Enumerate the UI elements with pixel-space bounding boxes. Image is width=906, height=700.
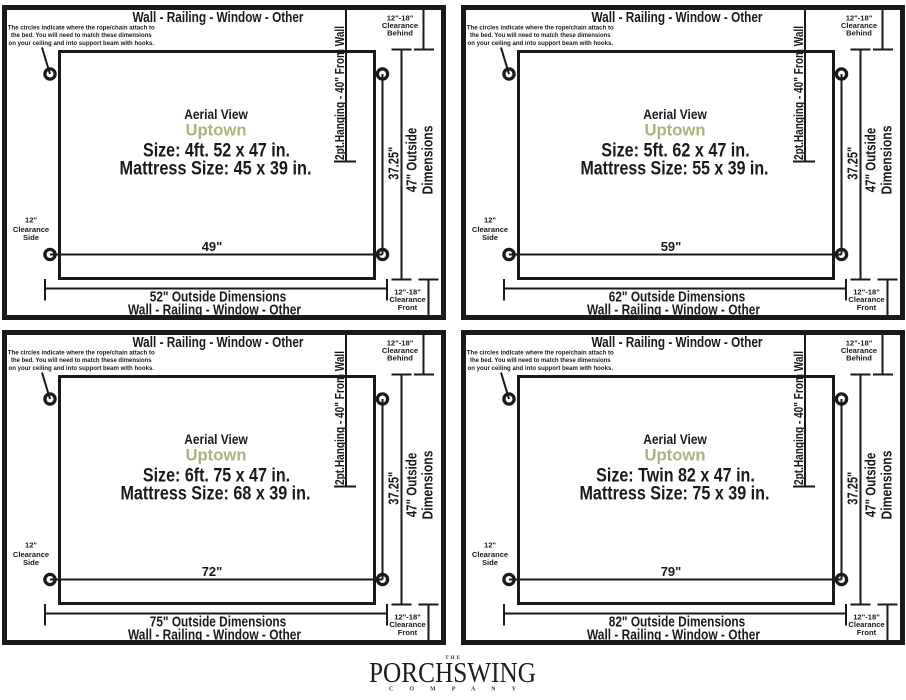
svg-text:on your ceiling and into suppo: on your ceiling and into support beam wi… — [9, 365, 155, 372]
svg-text:Dimensions: Dimensions — [880, 451, 896, 520]
svg-text:37.25": 37.25" — [845, 472, 862, 505]
svg-text:2pt.Hanging - 40" From Wall: 2pt.Hanging - 40" From Wall — [332, 351, 347, 485]
svg-text:Front: Front — [857, 303, 877, 312]
svg-text:The circles indicate where the: The circles indicate where the rope/chai… — [467, 24, 614, 31]
svg-text:Behind: Behind — [387, 29, 413, 38]
svg-text:72": 72" — [202, 564, 223, 579]
svg-text:Front: Front — [857, 628, 877, 637]
svg-text:on your ceiling and into suppo: on your ceiling and into support beam wi… — [9, 40, 155, 47]
svg-text:The circles indicate where the: The circles indicate where the rope/chai… — [8, 349, 155, 356]
svg-text:Uptown: Uptown — [186, 447, 247, 465]
svg-text:Mattress Size: 75 x 39 in.: Mattress Size: 75 x 39 in. — [580, 484, 770, 505]
svg-text:Behind: Behind — [846, 354, 872, 363]
svg-text:37.25": 37.25" — [845, 147, 862, 180]
svg-text:the bed. You will need to matc: the bed. You will need to match these di… — [470, 357, 611, 364]
svg-text:Behind: Behind — [387, 354, 413, 363]
svg-text:Behind: Behind — [846, 29, 872, 38]
svg-text:47" Outside: 47" Outside — [864, 453, 880, 518]
svg-text:Dimensions: Dimensions — [880, 126, 896, 195]
svg-text:Wall - Railing - Window - Othe: Wall - Railing - Window - Other — [587, 303, 760, 319]
svg-text:47" Outside: 47" Outside — [864, 128, 880, 193]
svg-text:Uptown: Uptown — [645, 447, 706, 465]
svg-text:2pt.Hanging - 40" From Wall: 2pt.Hanging - 40" From Wall — [791, 351, 806, 485]
svg-text:Front: Front — [398, 628, 418, 637]
svg-text:49": 49" — [202, 239, 223, 254]
svg-text:Mattress Size: 55 x 39 in.: Mattress Size: 55 x 39 in. — [581, 159, 769, 180]
svg-text:47" Outside: 47" Outside — [405, 128, 421, 193]
svg-text:12": 12" — [484, 540, 496, 549]
svg-text:2pt.Hanging - 40" From Wall: 2pt.Hanging - 40" From Wall — [332, 26, 347, 160]
svg-text:Side: Side — [23, 233, 39, 242]
svg-text:12": 12" — [484, 215, 496, 224]
svg-text:37.25": 37.25" — [386, 472, 403, 505]
svg-text:Wall - Railing - Window - Othe: Wall - Railing - Window - Other — [587, 628, 760, 644]
svg-text:59": 59" — [661, 239, 682, 254]
svg-text:the bed. You will need to matc: the bed. You will need to match these di… — [11, 32, 152, 39]
svg-text:12": 12" — [25, 540, 37, 549]
svg-text:47" Outside: 47" Outside — [405, 453, 421, 518]
svg-text:12": 12" — [25, 215, 37, 224]
svg-text:on your ceiling and into suppo: on your ceiling and into support beam wi… — [468, 365, 614, 372]
svg-text:Mattress Size: 45 x 39 in.: Mattress Size: 45 x 39 in. — [120, 159, 312, 180]
svg-text:Aerial View: Aerial View — [184, 106, 248, 122]
svg-text:Side: Side — [23, 558, 39, 567]
svg-text:the bed. You will need to matc: the bed. You will need to match these di… — [470, 32, 611, 39]
svg-text:Aerial View: Aerial View — [184, 431, 248, 447]
svg-text:Wall - Railing - Window - Othe: Wall - Railing - Window - Other — [592, 335, 763, 351]
svg-text:Uptown: Uptown — [645, 122, 706, 140]
svg-text:Side: Side — [482, 558, 498, 567]
svg-text:Wall - Railing - Window - Othe: Wall - Railing - Window - Other — [133, 335, 304, 351]
svg-text:Wall - Railing - Window - Othe: Wall - Railing - Window - Other — [592, 10, 763, 26]
svg-text:37.25": 37.25" — [386, 147, 403, 180]
svg-text:Wall - Railing - Window - Othe: Wall - Railing - Window - Other — [128, 303, 301, 319]
svg-text:Front: Front — [398, 303, 418, 312]
svg-text:Wall - Railing - Window - Othe: Wall - Railing - Window - Other — [128, 628, 301, 644]
svg-text:2pt.Hanging - 40" From Wall: 2pt.Hanging - 40" From Wall — [791, 26, 806, 160]
svg-text:Side: Side — [482, 233, 498, 242]
svg-text:The circles indicate where the: The circles indicate where the rope/chai… — [467, 349, 614, 356]
svg-text:Dimensions: Dimensions — [421, 451, 437, 520]
svg-text:The circles indicate where the: The circles indicate where the rope/chai… — [8, 24, 155, 31]
svg-text:Aerial View: Aerial View — [643, 431, 707, 447]
svg-text:on your ceiling and into suppo: on your ceiling and into support beam wi… — [468, 40, 614, 47]
svg-text:79": 79" — [661, 564, 682, 579]
svg-text:Wall - Railing - Window - Othe: Wall - Railing - Window - Other — [133, 10, 304, 26]
svg-text:Mattress Size: 68 x 39 in.: Mattress Size: 68 x 39 in. — [121, 484, 311, 505]
svg-text:Uptown: Uptown — [186, 122, 247, 140]
svg-text:PORCHSWING: PORCHSWING — [369, 657, 536, 689]
svg-text:Dimensions: Dimensions — [421, 126, 437, 195]
svg-text:Aerial View: Aerial View — [643, 106, 707, 122]
svg-text:the bed. You will need to matc: the bed. You will need to match these di… — [11, 357, 152, 364]
